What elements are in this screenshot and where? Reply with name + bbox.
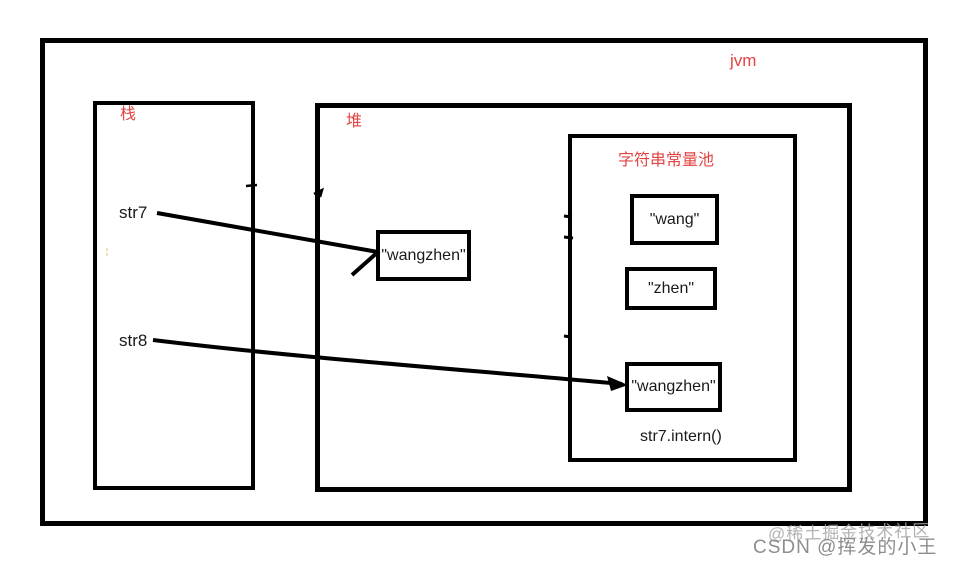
stack-var-str7: str7 (119, 204, 147, 221)
jvm-memory-diagram: jvm 栈 堆 字符串常量池 str7 str8 "wangzhen" "wan… (0, 0, 964, 561)
heap-wangzhen-box: "wangzhen" (376, 230, 471, 281)
pool-zhen-text: "zhen" (648, 280, 694, 298)
pool-wangzhen-box: "wangzhen" (625, 362, 722, 412)
stack-label: 栈 (120, 107, 136, 123)
heap-wangzhen-text: "wangzhen" (381, 247, 465, 265)
pool-wangzhen-text: "wangzhen" (631, 378, 715, 396)
stack-box (93, 101, 255, 490)
string-constant-pool-label: 字符串常量池 (618, 153, 714, 169)
pool-wang-box: "wang" (630, 194, 719, 245)
watermark-csdn: CSDN @挥发的小王 (753, 532, 937, 559)
stack-var-str8: str8 (119, 332, 147, 349)
heap-label: 堆 (346, 114, 362, 130)
intern-caption: str7.intern() (640, 429, 722, 445)
pool-zhen-box: "zhen" (625, 267, 717, 310)
pool-wang-text: "wang" (650, 211, 700, 229)
jvm-label: jvm (730, 52, 756, 69)
